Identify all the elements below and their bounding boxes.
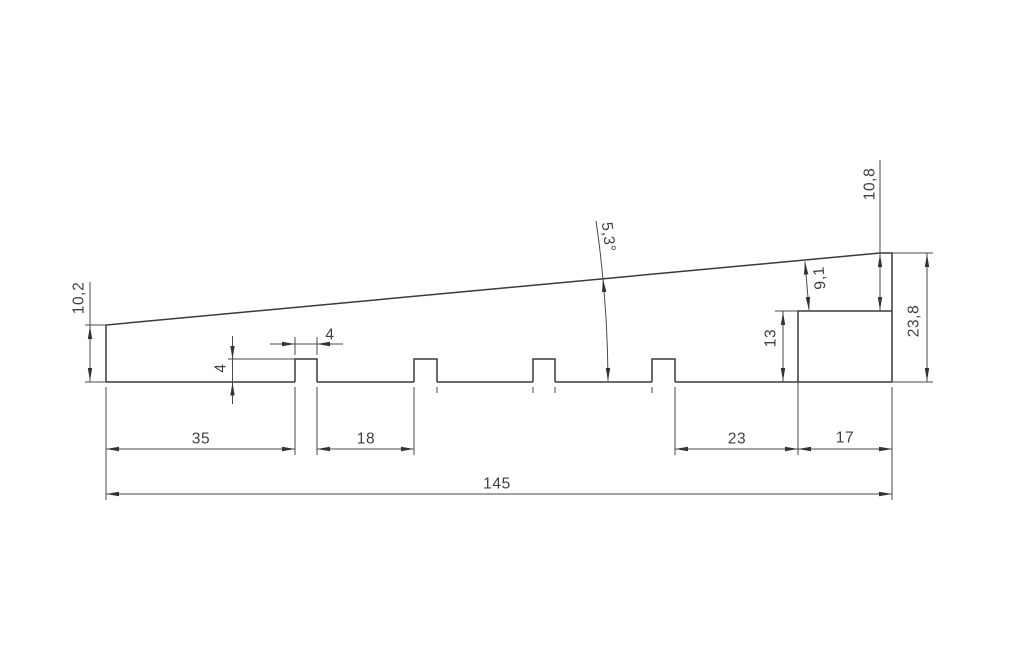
label-10-8: 10,8 [861, 168, 878, 201]
arrow [879, 492, 892, 496]
arrowheads [88, 254, 929, 496]
arrow [317, 447, 330, 451]
dimension-lines [90, 160, 927, 494]
label-9-1: 9,1 [810, 266, 829, 291]
arrow [925, 368, 929, 381]
arrow [606, 368, 610, 381]
slot-1 [295, 359, 317, 382]
arrow [106, 447, 119, 451]
ext-slot-width [295, 337, 317, 355]
part-outline [106, 253, 892, 382]
arrow [401, 447, 414, 451]
label-13: 13 [762, 329, 779, 347]
arrow [878, 254, 882, 267]
label-23-8: 23,8 [905, 305, 922, 338]
label-slot-depth: 4 [212, 363, 229, 372]
arrow [88, 326, 92, 339]
label-slot-width: 4 [325, 326, 334, 343]
arrow [806, 297, 810, 310]
arrow [675, 447, 688, 451]
label-angle: 5,3° [598, 221, 619, 253]
arrow [878, 297, 882, 310]
label-23: 23 [728, 430, 746, 447]
part-profile-top [106, 253, 892, 382]
slot-3 [533, 359, 555, 382]
arrow [785, 447, 798, 451]
arrow [781, 312, 785, 325]
arrow [230, 383, 234, 396]
extension-lines [85, 253, 933, 500]
arrow [781, 368, 785, 381]
label-145: 145 [483, 475, 511, 492]
arrow [230, 346, 234, 359]
arrow [88, 368, 92, 381]
arrow [282, 447, 295, 451]
arrow [798, 447, 811, 451]
arrow [879, 447, 892, 451]
slot-2 [414, 359, 437, 382]
arrow [106, 492, 119, 496]
label-35: 35 [192, 430, 210, 447]
technical-drawing: 10,2 4 4 35 18 23 17 145 13 9,1 10,8 23,… [0, 0, 1024, 647]
arrow [282, 342, 295, 346]
slot-4 [652, 359, 675, 382]
label-18: 18 [357, 430, 375, 447]
arrow [925, 254, 929, 267]
dimension-labels: 10,2 4 4 35 18 23 17 145 13 9,1 10,8 23,… [70, 168, 922, 493]
arrow [602, 279, 606, 292]
step-edge [798, 311, 892, 382]
arrow [804, 262, 808, 275]
label-left-height: 10,2 [70, 282, 87, 315]
label-17: 17 [836, 429, 854, 446]
drawing-sheet: 10,2 4 4 35 18 23 17 145 13 9,1 10,8 23,… [0, 0, 1024, 647]
